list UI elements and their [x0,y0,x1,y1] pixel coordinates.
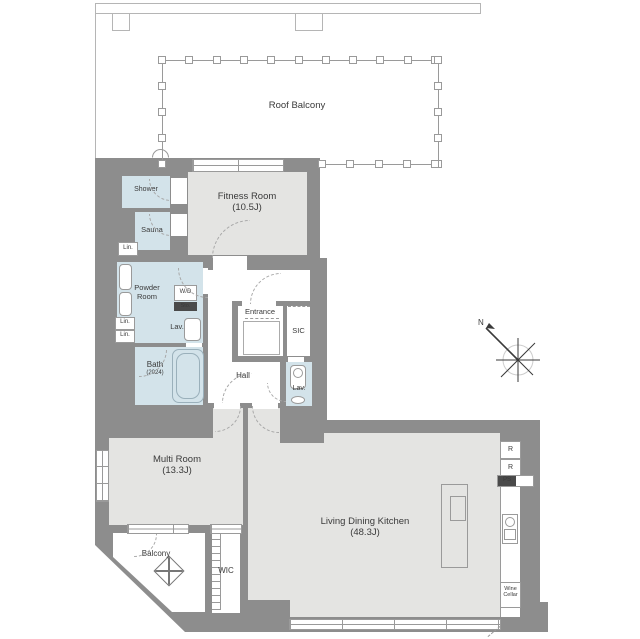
roof-balcony-label: Roof Balcony [247,100,347,111]
floor-plan: Lin. W/D Sto. Lin. Lin. R R PS Wine Cell… [0,0,640,639]
door-opening-shower [171,178,187,204]
multi-label: Multi Room(13.3J) [133,454,221,477]
building-outline-top-line2 [95,13,481,14]
linen-label: Lin. [118,245,138,253]
compass-north-label: N [478,318,484,327]
toilet-label: Lav. [288,385,310,393]
entrance-sill [245,318,279,319]
storage-badge: Sto. [174,302,197,311]
stove-grate-icon [504,529,516,540]
wic-label: WIC [212,566,240,576]
bathtub-inner [176,353,200,399]
compass-icon: N [477,316,551,392]
entrance-label: Entrance [237,307,283,316]
building-outline-notch [112,14,130,31]
sic-label: SIC [288,326,309,335]
ldk-label: Living Dining Kitchen(48.3J) [300,516,430,539]
wine-cellar-label: Wine Cellar [500,586,521,604]
refrigerator-label: R [500,464,521,473]
toilet-bowl-icon [293,368,303,378]
door-opening-fitness [213,256,247,270]
window-fitness [192,159,284,172]
linen-label: Lin. [115,319,135,327]
roof-balcony-railing-top [158,56,439,65]
building-outline-left-line [95,3,96,158]
lavatory-label: Lav. [164,322,190,331]
door-opening-sauna [171,214,187,236]
building-outline-right-cap [480,3,481,14]
kitchen-island-sink [450,496,466,521]
window-multi-balcony [127,524,189,534]
refrigerator-label: R [500,446,521,455]
door-opening-lav [288,357,304,362]
powder-label: Powder Room [124,283,170,301]
roof-balcony-railing-bottom [318,160,439,169]
window-ldk-bottom [289,619,501,630]
fitness-label: Fitness Room(10.5J) [186,191,308,214]
entrance-floor-mat [243,321,280,355]
sic-folding-door [288,306,310,307]
pipe-space-label: PS [498,476,516,486]
window-multi-left [96,450,109,502]
building-outline-notch [295,14,323,31]
linen-label: Lin. [115,332,135,340]
room-multi [109,438,243,525]
door-opening-bath [186,343,202,347]
lav-sink-icon [291,396,305,404]
window-wic-top [210,524,242,534]
roof-balcony-railing-right [434,56,443,168]
stove-burner-icon [505,517,515,527]
building-outline-top-line [95,3,481,4]
